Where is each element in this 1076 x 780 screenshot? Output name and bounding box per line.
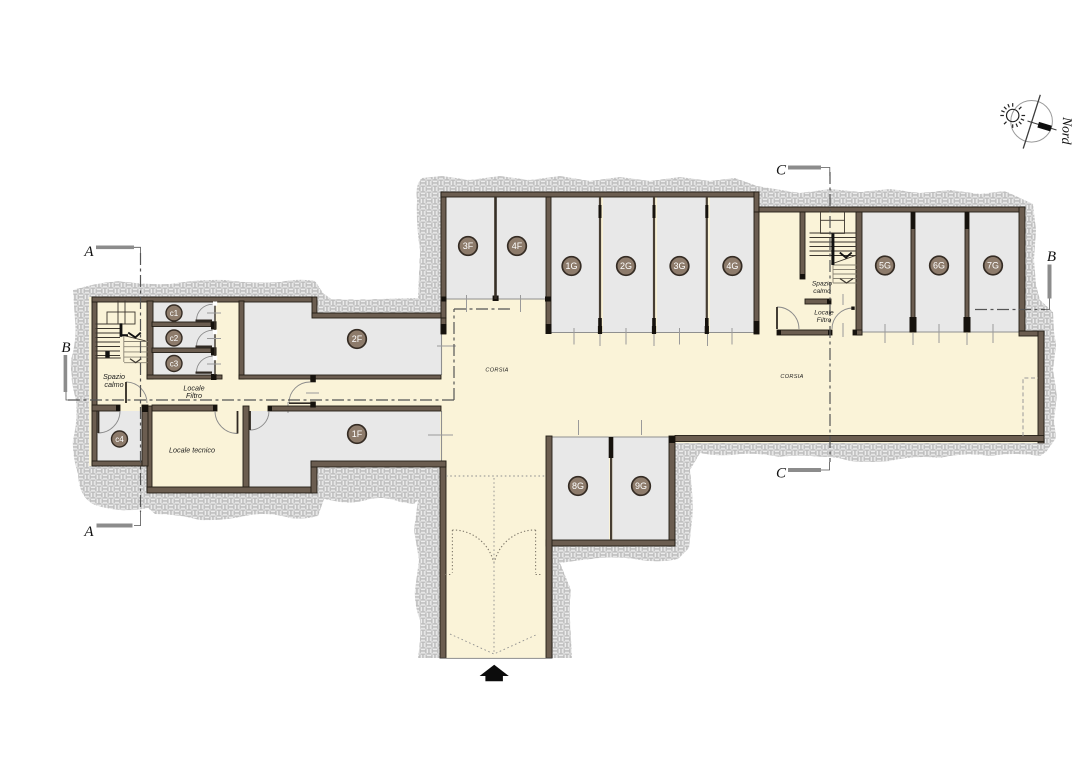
- svg-text:8G: 8G: [572, 481, 584, 491]
- svg-text:C: C: [776, 163, 787, 179]
- svg-text:7G: 7G: [987, 261, 999, 271]
- svg-text:2G: 2G: [620, 261, 632, 271]
- svg-text:A: A: [83, 524, 94, 540]
- svg-text:4F: 4F: [512, 241, 523, 251]
- svg-text:1G: 1G: [565, 261, 577, 271]
- svg-text:A: A: [83, 244, 94, 260]
- svg-text:B: B: [61, 340, 70, 356]
- svg-text:5G: 5G: [879, 261, 891, 271]
- svg-text:Filtro: Filtro: [817, 317, 832, 324]
- svg-text:c2: c2: [170, 334, 179, 343]
- svg-text:CORSIA: CORSIA: [780, 374, 803, 380]
- svg-text:Nord: Nord: [1059, 116, 1075, 145]
- svg-text:4G: 4G: [726, 261, 738, 271]
- svg-text:3G: 3G: [673, 261, 685, 271]
- svg-text:CORSIA: CORSIA: [485, 368, 508, 374]
- svg-text:c1: c1: [170, 309, 179, 318]
- svg-text:c3: c3: [170, 359, 179, 368]
- svg-text:6G: 6G: [933, 261, 945, 271]
- svg-text:calmo: calmo: [813, 288, 831, 295]
- svg-text:Locale: Locale: [814, 310, 834, 317]
- svg-text:Locale tecnico: Locale tecnico: [169, 446, 215, 455]
- svg-text:calmo: calmo: [104, 380, 123, 389]
- svg-text:Filtro: Filtro: [186, 391, 202, 400]
- svg-text:1F: 1F: [352, 429, 363, 439]
- svg-text:9G: 9G: [635, 481, 647, 491]
- svg-text:C: C: [776, 466, 787, 482]
- svg-text:2F: 2F: [352, 334, 363, 344]
- svg-text:3F: 3F: [463, 241, 474, 251]
- svg-text:c4: c4: [115, 435, 124, 444]
- svg-text:B: B: [1047, 249, 1056, 265]
- svg-text:Spazio: Spazio: [812, 281, 832, 288]
